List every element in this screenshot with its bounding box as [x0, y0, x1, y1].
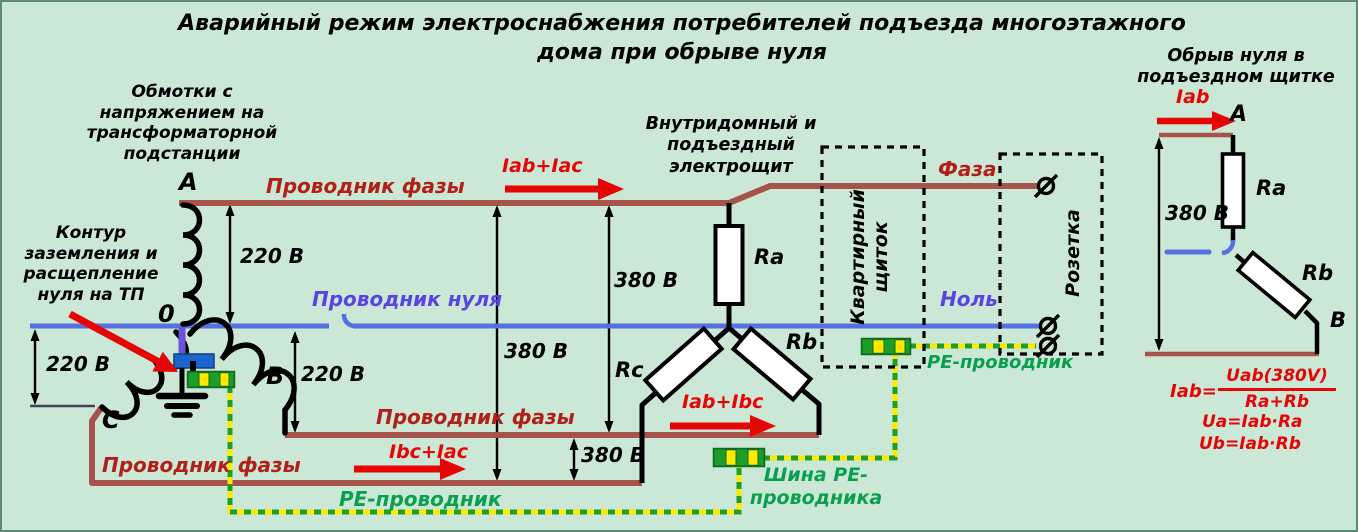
apartment-panel-label: Квартирный щиток [847, 147, 899, 367]
pe-terminal-tp [188, 372, 234, 387]
phase-c-conductor-label: Проводник фазы [102, 453, 301, 477]
mini-node-a-label: A [1230, 102, 1247, 129]
formula-ua: Ua=Iab·Ra [1202, 412, 1303, 433]
v380-ac-label: 380 В [504, 339, 568, 363]
socket-terminals [1035, 175, 1059, 357]
pe-conductor-right-label: PE-проводник [927, 352, 1073, 374]
mini-iab-label: Iab [1176, 86, 1210, 109]
formula-numerator: Uab(380V) [1218, 366, 1336, 391]
v220-b-label: 220 В [301, 362, 365, 386]
ra-label: Ra [754, 245, 784, 271]
socket-label: Розетка [1062, 191, 1088, 315]
mini-rb-label: Rb [1302, 261, 1333, 287]
v220-left-label: 220 В [46, 352, 110, 376]
v380-bc-label: 380 В [581, 443, 645, 467]
ground-symbol [159, 396, 205, 415]
rc-label: Rc [615, 358, 644, 384]
rb-label: Rb [786, 330, 817, 356]
mini-node-b-label: B [1330, 308, 1346, 334]
mini-v380-label: 380 В [1165, 201, 1229, 225]
formula-denominator: Ra+Rb [1216, 391, 1338, 413]
socket-phase-terminal [1035, 175, 1057, 197]
v380-ab-label: 380 В [614, 268, 678, 292]
formula-iab-lhs: Iab= [1170, 381, 1217, 403]
winding-a-coil [183, 205, 200, 324]
mini-resistor-rb [1238, 253, 1310, 318]
mini-title: Обрыв нуля в подъездном щитке [1115, 46, 1357, 89]
socket-phase-label: Фаза [938, 157, 996, 181]
mini-neutral-break-hook [1222, 240, 1233, 253]
pe-conductor-bottom-label: PE-проводник [339, 487, 501, 511]
building-panel-label: Внутридомный и подъездный электрощит [630, 114, 832, 178]
node-c-label: C [102, 406, 120, 435]
iab-iac-label: Iab+Iac [502, 155, 583, 178]
tp-ground-label: Контур заземления и расщепление нуля на … [10, 223, 172, 306]
socket-neutral-terminal [1037, 315, 1059, 337]
resistor-rc [645, 329, 721, 401]
wiring-diagram: Аварийный режим электроснабжения потреби… [0, 0, 1358, 532]
node-a-label: A [179, 168, 198, 197]
pe-bus-label: Шина PE- проводника [748, 464, 884, 510]
node-b-label: B [266, 362, 284, 391]
formula-iab-fraction: Uab(380V) Ra+Rb [1216, 366, 1338, 414]
node-0-label: 0 [158, 300, 175, 329]
mini-circuit [1145, 111, 1319, 354]
ibc-iac-label: Ibc+Iac [389, 441, 468, 464]
resistor-ra [716, 226, 743, 304]
iab-ibc-label: Iab+Ibc [682, 391, 763, 414]
v220-a-label: 220 В [240, 244, 304, 268]
formula-ub: Ub=Iab·Rb [1199, 434, 1301, 455]
socket-neutral-label: Ноль [940, 287, 998, 311]
phase-b-conductor-label: Проводник фазы [376, 405, 575, 429]
mini-ra-label: Ra [1256, 176, 1286, 202]
tp-windings-label: Обмотки с напряжением на трансформаторно… [72, 82, 292, 165]
phase-a-conductor-label: Проводник фазы [266, 174, 465, 198]
neutral-conductor-label: Проводник нуля [312, 287, 502, 311]
